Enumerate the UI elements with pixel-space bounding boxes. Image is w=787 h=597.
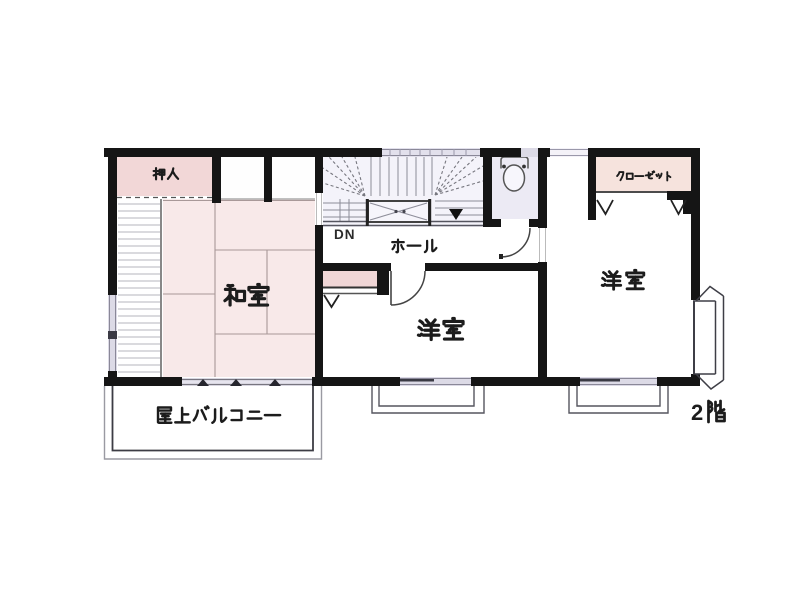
svg-text:2: 2 — [691, 400, 703, 425]
svg-text:DN: DN — [334, 227, 356, 242]
